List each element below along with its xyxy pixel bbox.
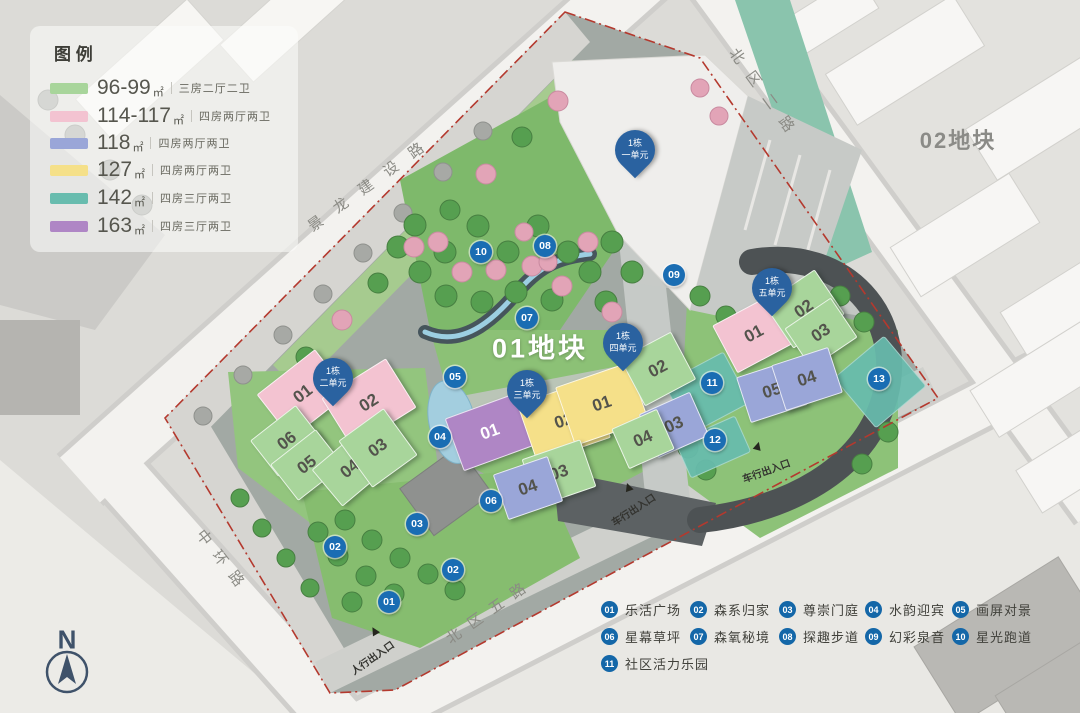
legend-swatch xyxy=(50,83,88,94)
legend-area: 114-117 xyxy=(97,104,171,128)
map-marker-09[interactable]: 09 xyxy=(663,264,685,286)
amenity-name: 社区活力乐园 xyxy=(625,654,709,673)
pin-line1: 1栋 xyxy=(765,276,779,288)
pin-line1: 1栋 xyxy=(520,378,534,390)
legend-unit: ㎡ xyxy=(134,166,145,182)
pin-line2: 四单元 xyxy=(609,343,636,355)
map-marker-10[interactable]: 10 xyxy=(470,241,492,263)
amenity-name: 画屏对景 xyxy=(976,600,1032,619)
map-marker-11[interactable]: 11 xyxy=(701,372,723,394)
legend-swatch xyxy=(50,111,88,122)
legend-panel: 图 例 96-99 ㎡ 三房二厅二卫 114-117 ㎡ 四房两厅两卫 118 … xyxy=(30,26,298,252)
amenity-num: 03 xyxy=(779,601,796,618)
amenity-name: 水韵迎宾 xyxy=(889,600,945,619)
site-plan-page: 01 02 06 05 04 03 01 02 01 03 04 02 03 0… xyxy=(0,0,1080,713)
legend-area: 142 xyxy=(97,186,132,210)
amenity-num: 04 xyxy=(865,601,882,618)
pin-icon: 1栋一单元 xyxy=(607,122,664,179)
pin-line2: 一单元 xyxy=(621,150,648,162)
legend-item: 118 ㎡ 四房两厅两卫 xyxy=(50,131,230,155)
legend-divider xyxy=(152,192,153,204)
legend-divider xyxy=(191,110,192,122)
map-marker-02b[interactable]: 02 xyxy=(442,559,464,581)
amenity-num: 09 xyxy=(865,628,882,645)
amenity-num: 02 xyxy=(690,601,707,618)
plot-01-title: 01地块 xyxy=(492,327,588,366)
legend-area: 127 xyxy=(97,158,132,182)
amenity-name: 探趣步道 xyxy=(803,627,859,646)
legend-item: 114-117 ㎡ 四房两厅两卫 xyxy=(50,104,271,128)
amenity-item: 04 水韵迎宾 xyxy=(865,600,945,619)
map-marker-02[interactable]: 02 xyxy=(324,536,346,558)
legend-desc: 四房两厅两卫 xyxy=(160,162,232,178)
map-marker-13[interactable]: 13 xyxy=(868,368,890,390)
legend-swatch xyxy=(50,221,88,232)
amenity-item: 07 森氧秘境 xyxy=(690,627,770,646)
pin-line1: 1栋 xyxy=(326,366,340,378)
legend-divider xyxy=(152,164,153,176)
legend-item: 163 ㎡ 四房三厅两卫 xyxy=(50,214,232,238)
legend-swatch xyxy=(50,165,88,176)
legend-title: 图 例 xyxy=(54,40,93,65)
map-marker-01[interactable]: 01 xyxy=(378,591,400,613)
pin-line1: 1栋 xyxy=(628,138,642,150)
amenity-item: 05 画屏对景 xyxy=(952,600,1032,619)
north-label: N xyxy=(58,625,77,656)
amenity-name: 森系归家 xyxy=(714,600,770,619)
amenity-item: 08 探趣步道 xyxy=(779,627,859,646)
pin-line2: 二单元 xyxy=(319,378,346,390)
legend-unit: ㎡ xyxy=(134,222,145,238)
legend-item: 127 ㎡ 四房两厅两卫 xyxy=(50,158,232,182)
legend-item: 96-99 ㎡ 三房二厅二卫 xyxy=(50,76,251,100)
amenity-num: 01 xyxy=(601,601,618,618)
amenity-item: 09 幻彩泉音 xyxy=(865,627,945,646)
legend-desc: 四房两厅两卫 xyxy=(199,108,271,124)
map-marker-07[interactable]: 07 xyxy=(516,307,538,329)
legend-swatch xyxy=(50,138,88,149)
legend-desc: 四房三厅两卫 xyxy=(160,190,232,206)
pin-line1: 1栋 xyxy=(616,331,630,343)
amenity-num: 08 xyxy=(779,628,796,645)
amenity-num: 05 xyxy=(952,601,969,618)
amenity-num: 11 xyxy=(601,655,618,672)
legend-desc: 四房两厅两卫 xyxy=(158,135,230,151)
amenity-name: 乐活广场 xyxy=(625,600,681,619)
legend-area: 96-99 xyxy=(97,76,151,100)
legend-area: 118 xyxy=(97,131,130,155)
map-marker-05[interactable]: 05 xyxy=(444,366,466,388)
pin-line2: 五单元 xyxy=(758,288,785,300)
amenity-num: 06 xyxy=(601,628,618,645)
pin-icon: 1栋二单元 xyxy=(305,350,362,407)
legend-divider xyxy=(152,220,153,232)
legend-item: 142 ㎡ 四房三厅两卫 xyxy=(50,186,232,210)
amenity-item: 10 星光跑道 xyxy=(952,627,1032,646)
amenity-item: 03 尊崇门庭 xyxy=(779,600,859,619)
legend-unit: ㎡ xyxy=(132,139,143,155)
amenity-name: 森氧秘境 xyxy=(714,627,770,646)
amenity-name: 星幕草坪 xyxy=(625,627,681,646)
legend-unit: ㎡ xyxy=(153,84,164,100)
plot-02-label: 02地块 xyxy=(920,123,996,155)
legend-desc: 四房三厅两卫 xyxy=(160,218,232,234)
amenity-item: 11 社区活力乐园 xyxy=(601,654,709,673)
amenity-num: 07 xyxy=(690,628,707,645)
amenity-num: 10 xyxy=(952,628,969,645)
amenity-item: 06 星幕草坪 xyxy=(601,627,681,646)
pin-line2: 三单元 xyxy=(513,390,540,402)
legend-area: 163 xyxy=(97,214,132,238)
map-marker-03[interactable]: 03 xyxy=(406,513,428,535)
legend-swatch xyxy=(50,193,88,204)
legend-unit: ㎡ xyxy=(173,112,184,128)
map-marker-08[interactable]: 08 xyxy=(534,235,556,257)
amenity-item: 01 乐活广场 xyxy=(601,600,681,619)
map-marker-06[interactable]: 06 xyxy=(480,490,502,512)
legend-divider xyxy=(171,82,172,94)
pin-icon: 1栋四单元 xyxy=(595,315,652,372)
amenity-name: 尊崇门庭 xyxy=(803,600,859,619)
amenity-item: 02 森系归家 xyxy=(690,600,770,619)
legend-desc: 三房二厅二卫 xyxy=(179,80,251,96)
legend-unit: ㎡ xyxy=(134,194,145,210)
pin-icon: 1栋五单元 xyxy=(744,260,801,317)
amenity-name: 幻彩泉音 xyxy=(889,627,945,646)
pin-icon: 1栋三单元 xyxy=(499,362,556,419)
amenity-name: 星光跑道 xyxy=(976,627,1032,646)
map-marker-04[interactable]: 04 xyxy=(429,426,451,448)
map-marker-12[interactable]: 12 xyxy=(704,429,726,451)
legend-divider xyxy=(150,137,151,149)
